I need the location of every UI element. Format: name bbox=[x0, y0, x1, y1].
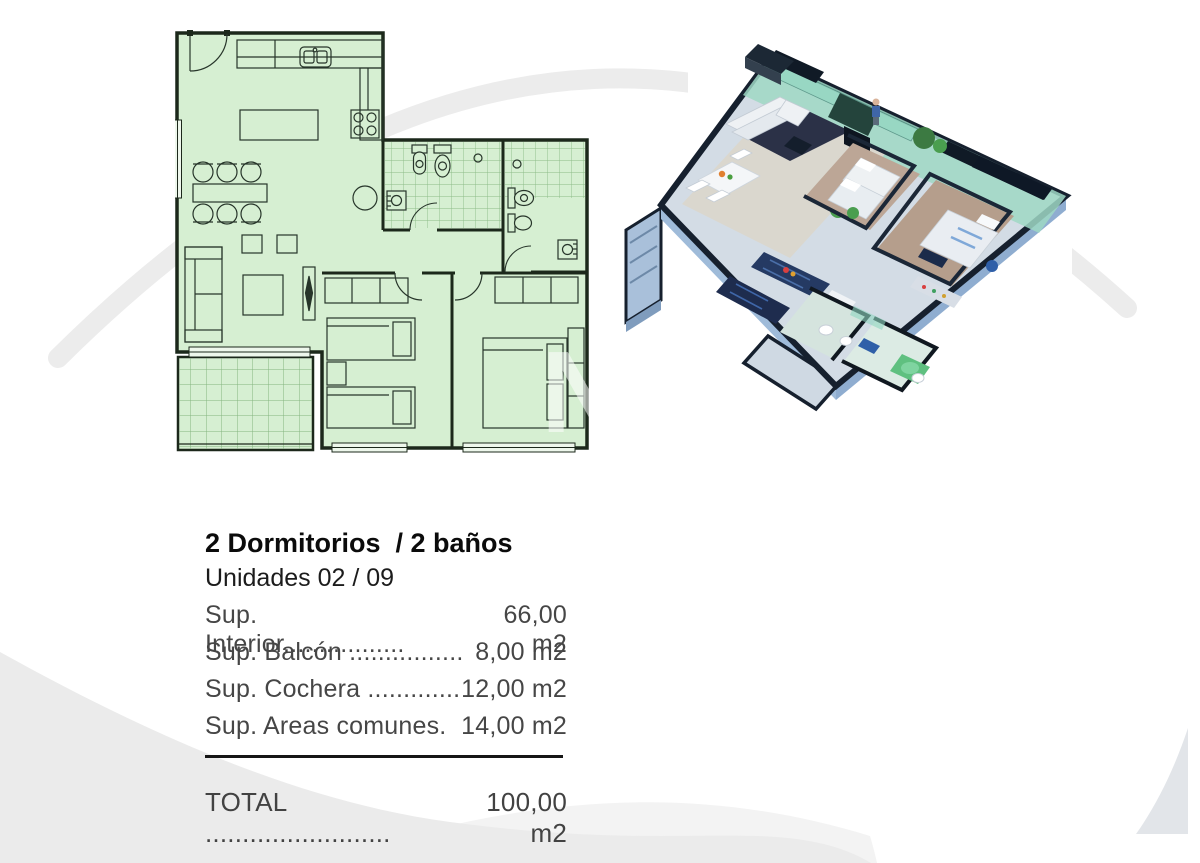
spec-value: 12,00 m2 bbox=[461, 675, 567, 704]
corner-wedge bbox=[1136, 728, 1188, 834]
total-value: 100,00 m2 bbox=[454, 787, 567, 849]
total-label: TOTAL ......................... bbox=[205, 787, 454, 849]
pouf bbox=[986, 260, 998, 272]
balcony-terrace bbox=[178, 357, 313, 450]
spec-label: Sup. Balcón ................ bbox=[205, 638, 464, 667]
toilet bbox=[434, 145, 451, 177]
render-3d bbox=[618, 38, 1073, 430]
terrace-tree bbox=[913, 127, 935, 149]
bath-sink-2 bbox=[558, 240, 577, 259]
spec-label: Sup. Cochera ............. bbox=[205, 675, 460, 704]
bathroom-1 bbox=[385, 142, 501, 230]
dining-table bbox=[193, 184, 267, 202]
person-figure bbox=[872, 99, 880, 126]
unit-subtitle: Unidades 02 / 09 bbox=[205, 564, 394, 593]
unit-title: 2 Dormitorios / 2 baños bbox=[205, 528, 513, 559]
watermark-letter: N bbox=[541, 327, 590, 457]
total-row: TOTAL ......................... 100,00 m… bbox=[205, 787, 567, 849]
spec-row-cochera: Sup. Cochera ............. 12,00 m2 bbox=[205, 675, 567, 704]
garage-stub bbox=[626, 208, 661, 332]
floorplan-2d: N bbox=[175, 28, 590, 460]
bidet-2 bbox=[508, 214, 532, 232]
toilet-3d bbox=[819, 325, 833, 335]
terrace-shrub bbox=[933, 139, 947, 153]
spec-row-balcon: Sup. Balcón ................ 8,00 m2 bbox=[205, 638, 567, 667]
plant-2 bbox=[847, 207, 859, 219]
spec-value: 14,00 m2 bbox=[461, 712, 567, 741]
spec-row-comunes: Sup. Areas comunes. 14,00 m2 bbox=[205, 712, 567, 741]
divider-rule bbox=[205, 755, 563, 758]
spec-value: 8,00 m2 bbox=[475, 638, 567, 667]
bidet bbox=[412, 145, 427, 174]
bath-sink bbox=[387, 191, 406, 210]
dining-area bbox=[193, 162, 267, 224]
spec-label: Sup. Areas comunes. bbox=[205, 712, 446, 741]
page: N bbox=[0, 0, 1200, 863]
